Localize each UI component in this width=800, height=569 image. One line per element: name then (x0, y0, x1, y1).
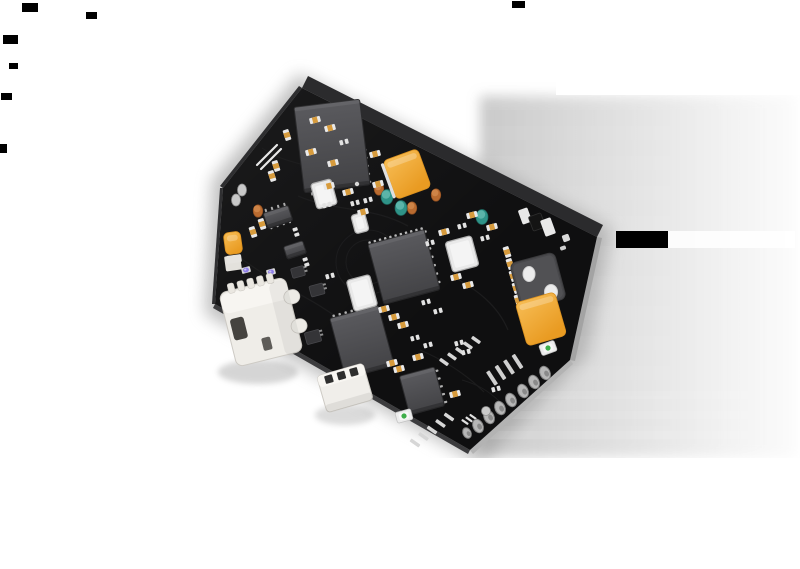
test-pad (482, 407, 491, 416)
shadow-cut-top (556, 58, 800, 95)
amber-body (223, 231, 243, 255)
render-artifact (22, 3, 38, 12)
gold-capacitor (223, 231, 243, 255)
shadow-gap-band (668, 231, 795, 248)
tantalum-capacitor (253, 205, 263, 217)
shadow-band-strong (480, 411, 795, 419)
cap-top (432, 189, 439, 196)
shadow-band (480, 156, 795, 170)
dual-hole (523, 267, 535, 282)
shadow-band-strong (480, 431, 795, 439)
pin-pad (409, 438, 420, 447)
cap-top (382, 190, 390, 198)
render-artifact (9, 63, 18, 69)
pcb-3d-render (0, 0, 800, 569)
test-pad (238, 184, 247, 196)
cap-top (396, 201, 404, 209)
render-artifact (86, 12, 97, 19)
render-artifact (3, 35, 18, 44)
render-artifact (616, 231, 668, 248)
render-artifact (1, 93, 12, 100)
rf-module-chip (294, 99, 370, 192)
render-artifact (0, 144, 7, 153)
cap-top (408, 202, 415, 209)
module-pin1-dot (355, 182, 359, 186)
shadow-band (480, 96, 795, 110)
shadow-band (480, 126, 795, 140)
test-pad (232, 194, 241, 206)
pcb-render-stage: 3D render of a black hexagonal PCB dev b… (0, 0, 800, 569)
teal-capacitor (395, 201, 407, 216)
cap-top (477, 210, 485, 218)
teal-capacitor (476, 210, 488, 225)
shadow-cut-bottom (428, 458, 800, 569)
pin (409, 438, 420, 447)
tantalum-capacitor (407, 202, 417, 214)
cap-top (254, 205, 261, 212)
chip-body (294, 99, 370, 192)
connector-shadow (218, 360, 298, 384)
tantalum-capacitor (431, 189, 441, 201)
render-artifact (512, 1, 525, 8)
